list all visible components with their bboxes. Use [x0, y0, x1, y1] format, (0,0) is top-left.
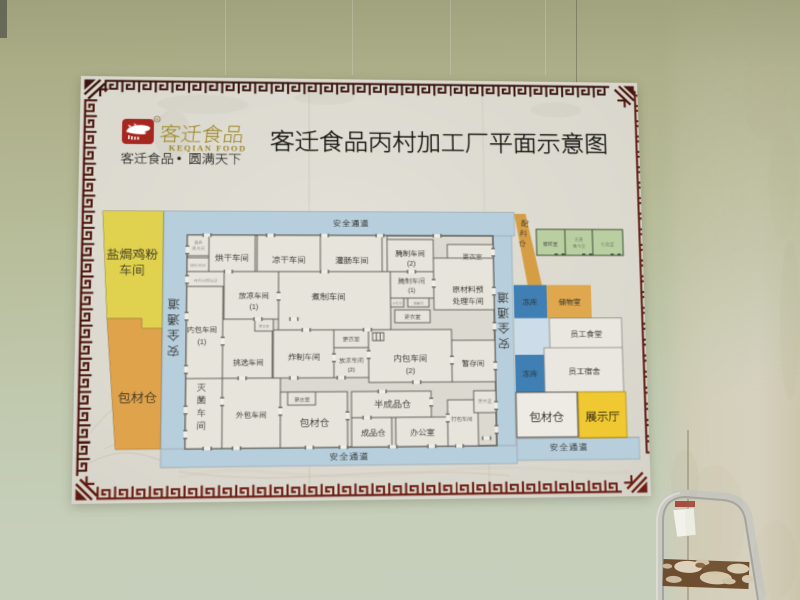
svg-text:(1): (1) — [249, 304, 258, 311]
svg-text:(1): (1) — [197, 339, 206, 346]
svg-text:(2): (2) — [407, 261, 416, 268]
svg-text:(2): (2) — [348, 368, 355, 374]
svg-text:(2): (2) — [406, 366, 416, 375]
svg-text:(1): (1) — [408, 288, 415, 294]
svg-text:KEQIAN FOOD: KEQIAN FOOD — [169, 144, 247, 153]
